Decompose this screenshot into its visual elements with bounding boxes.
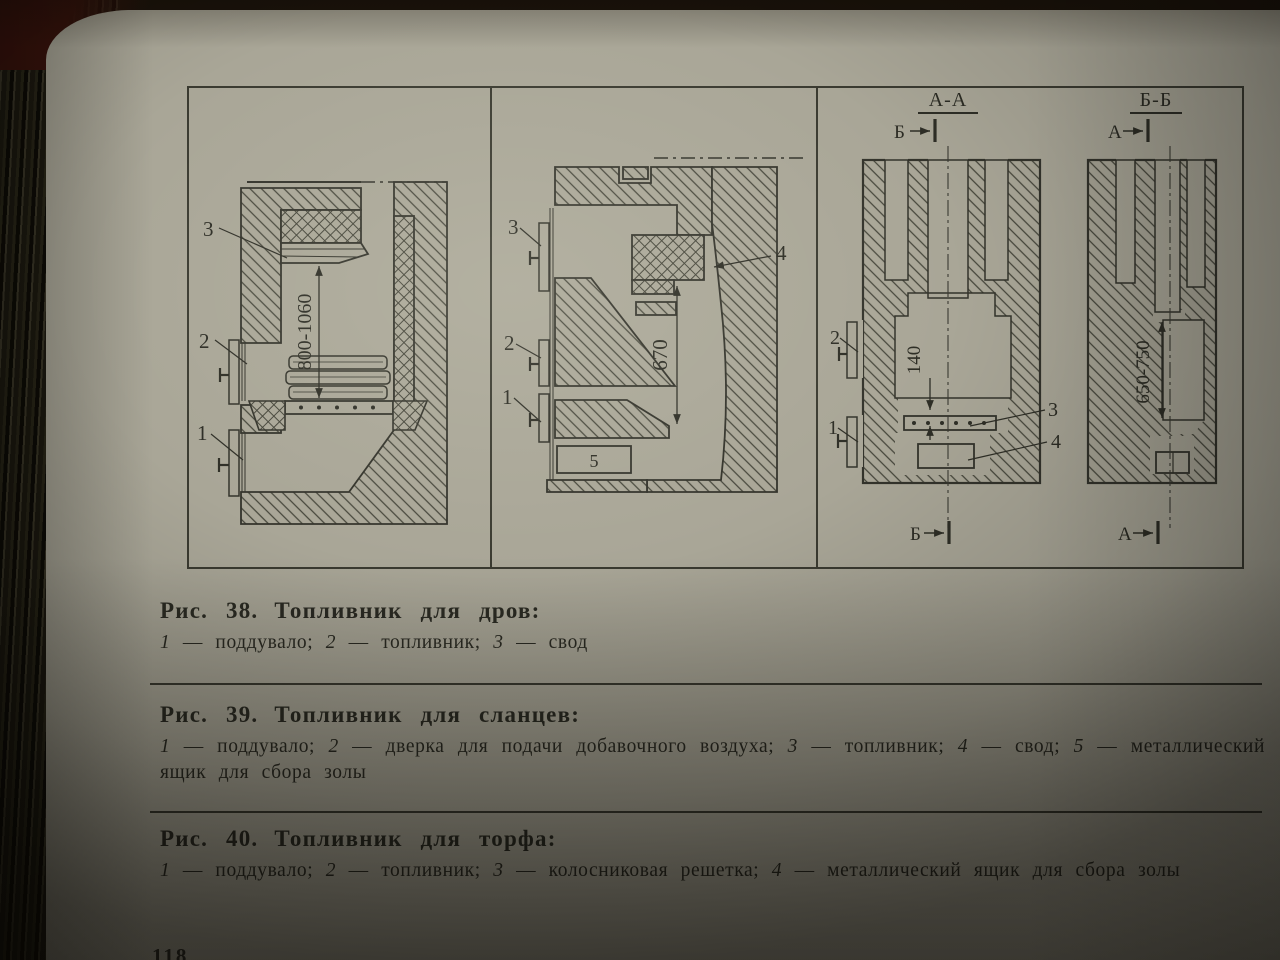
figure-40-ref: Рис. 40. bbox=[160, 826, 258, 851]
legend-text: — топливник; bbox=[336, 632, 493, 653]
doors bbox=[539, 223, 549, 442]
legend-number: 1 bbox=[160, 632, 170, 653]
label-3: 3 bbox=[508, 215, 519, 239]
legend-number: 4 bbox=[958, 736, 968, 757]
legend-text: — поддувало; bbox=[170, 860, 325, 881]
legend-number: 2 bbox=[326, 632, 336, 653]
label-3: 3 bbox=[1048, 399, 1058, 421]
vault-plates bbox=[281, 243, 368, 263]
fig39-drawing: 5 670 4 bbox=[492, 88, 816, 563]
figure-38-heading: Рис. 38.Топливник для дров: bbox=[160, 598, 1265, 624]
figure-38-ref: Рис. 38. bbox=[160, 598, 258, 623]
legend-text: — топливник; bbox=[798, 736, 958, 757]
figure-39-ref: Рис. 39. bbox=[160, 702, 258, 727]
chute-lower-band bbox=[555, 400, 669, 438]
legend-text: — свод bbox=[504, 632, 588, 653]
legend-number: 4 bbox=[772, 860, 782, 881]
label-5: 5 bbox=[590, 451, 599, 471]
figure-40-legend: 1 — поддувало; 2 — топливник; 3 — колосн… bbox=[160, 858, 1265, 884]
label-4: 4 bbox=[1051, 431, 1061, 453]
doors bbox=[229, 340, 239, 496]
ashpit-door bbox=[539, 394, 549, 442]
legend-number: 3 bbox=[493, 860, 503, 881]
door-handles bbox=[219, 368, 229, 472]
dim-label: 140 bbox=[904, 346, 925, 375]
panel-fig40: А-А Б bbox=[816, 88, 1244, 567]
dim-label: 800-1060 bbox=[294, 294, 316, 371]
section-AA: А-А Б bbox=[828, 89, 1061, 545]
figure-39-legend: 1 — поддувало; 2 — дверка для подачи доб… bbox=[160, 734, 1265, 786]
separator-rule-2 bbox=[150, 811, 1262, 813]
legend-text: — колосниковая решетка; bbox=[504, 860, 772, 881]
label-4: 4 bbox=[776, 241, 787, 265]
label-2: 2 bbox=[830, 327, 840, 349]
legend-text: — поддувало; bbox=[170, 632, 325, 653]
dim-label: 670 bbox=[648, 339, 672, 371]
ashpit-door bbox=[229, 430, 239, 496]
slab-notch-block bbox=[623, 167, 648, 179]
legend-number: 2 bbox=[326, 860, 336, 881]
ashpit-door bbox=[847, 417, 857, 467]
vault-block bbox=[632, 235, 704, 280]
label-2: 2 bbox=[504, 331, 515, 355]
firebox-door bbox=[229, 340, 239, 404]
label-1: 1 bbox=[197, 421, 208, 445]
figure-39-title: Топливник для сланцев: bbox=[274, 702, 580, 727]
legend-number: 2 bbox=[328, 736, 338, 757]
legend-number: 5 bbox=[1074, 736, 1084, 757]
panel-fig39: 5 670 4 bbox=[490, 88, 816, 567]
floor-band bbox=[547, 480, 647, 492]
figure-39-heading: Рис. 39.Топливник для сланцев: bbox=[160, 702, 1265, 728]
separator-rule-1 bbox=[150, 683, 1262, 685]
door-handles bbox=[530, 251, 539, 427]
wall-right-mass bbox=[647, 167, 777, 492]
label-3: 3 bbox=[203, 217, 214, 241]
label-2: 2 bbox=[199, 329, 210, 353]
upper-door bbox=[539, 223, 549, 291]
fig38-drawing: 800-1060 3 2 1 bbox=[189, 88, 490, 563]
vault-block bbox=[281, 210, 361, 243]
figure-38-title: Топливник для дров: bbox=[274, 598, 540, 623]
figure-40-title: Топливник для торфа: bbox=[274, 826, 556, 851]
cut-marker-top: Б bbox=[894, 122, 905, 143]
legend-text: — дверка для подачи добавочного воздуха; bbox=[339, 736, 788, 757]
section-title: А-А bbox=[929, 89, 968, 111]
book-photo: 800-1060 3 2 1 bbox=[0, 0, 1280, 960]
cut-marker-bottom: Б bbox=[910, 524, 921, 545]
legend-text: — поддувало; bbox=[170, 736, 328, 757]
firebrick-liner bbox=[394, 216, 414, 408]
cut-marker-top: А bbox=[1108, 122, 1122, 143]
legend-number: 1 bbox=[160, 736, 170, 757]
figure-38-legend: 1 — поддувало; 2 — топливник; 3 — свод bbox=[160, 630, 1265, 656]
page-number: 118 bbox=[152, 944, 188, 960]
fig40-drawing: А-А Б bbox=[818, 88, 1244, 563]
part-labels: 3 2 1 bbox=[502, 215, 519, 409]
air-door bbox=[539, 340, 549, 386]
panel-fig38: 800-1060 3 2 1 bbox=[189, 88, 490, 567]
cut-marker-bottom: А bbox=[1118, 524, 1132, 545]
ash-box bbox=[918, 444, 974, 468]
figure-40-caption: Рис. 40.Топливник для торфа: 1 — поддува… bbox=[160, 826, 1265, 884]
label-1: 1 bbox=[502, 385, 513, 409]
legend-number: 1 bbox=[160, 860, 170, 881]
label-1: 1 bbox=[828, 417, 838, 439]
legend-text: — металлический ящик для сбора золы bbox=[782, 860, 1180, 881]
figure-38-caption: Рис. 38.Топливник для дров: 1 — поддувал… bbox=[160, 598, 1265, 656]
section-BB: Б-Б А bbox=[1088, 89, 1216, 545]
legend-number: 3 bbox=[493, 632, 503, 653]
vault-slab bbox=[636, 302, 676, 315]
dim-label: 650-750 bbox=[1133, 340, 1154, 403]
figure-40-heading: Рис. 40.Топливник для торфа: bbox=[160, 826, 1265, 852]
doors bbox=[847, 322, 857, 467]
section-title: Б-Б bbox=[1140, 89, 1173, 111]
part-labels: 3 2 1 bbox=[197, 217, 214, 445]
figure-box: 800-1060 3 2 1 bbox=[187, 86, 1244, 569]
figure-39-caption: Рис. 39.Топливник для сланцев: 1 — подду… bbox=[160, 702, 1265, 786]
legend-number: 3 bbox=[788, 736, 798, 757]
legend-text: — топливник; bbox=[336, 860, 493, 881]
vault-step bbox=[632, 280, 674, 294]
legend-text: — свод; bbox=[968, 736, 1073, 757]
